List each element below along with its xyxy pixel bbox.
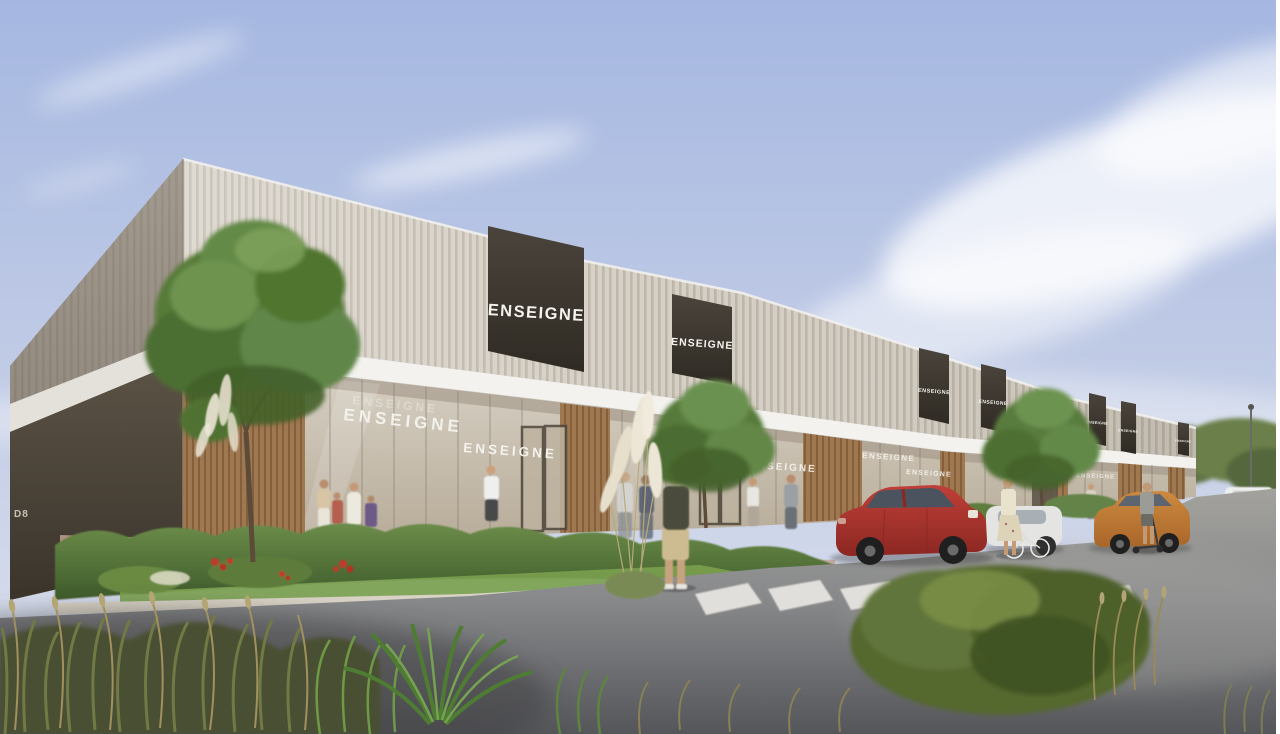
foreground-grass-mass xyxy=(0,622,380,734)
sign-panel-3: ENSEIGNE xyxy=(918,348,951,424)
sign-panel-6: ENSEIGNE xyxy=(1118,401,1139,454)
image-edge-strip xyxy=(1276,0,1280,734)
car-pillar xyxy=(903,489,905,507)
rendering-canvas: D8 xyxy=(0,0,1280,734)
wall-plate-label: D8 xyxy=(14,509,29,520)
retail-park-scene: D8 xyxy=(0,0,1280,734)
headlight xyxy=(838,518,846,524)
sign-panel-2: ENSEIGNE xyxy=(671,294,734,385)
entrance-door-left xyxy=(522,426,566,531)
white-car xyxy=(984,506,1064,556)
sign-panel-1: ENSEIGNE xyxy=(487,226,585,372)
foreground-bush xyxy=(850,565,1150,715)
pampas-base xyxy=(605,571,665,599)
taillight xyxy=(968,510,978,518)
lamp-head xyxy=(1248,404,1254,410)
